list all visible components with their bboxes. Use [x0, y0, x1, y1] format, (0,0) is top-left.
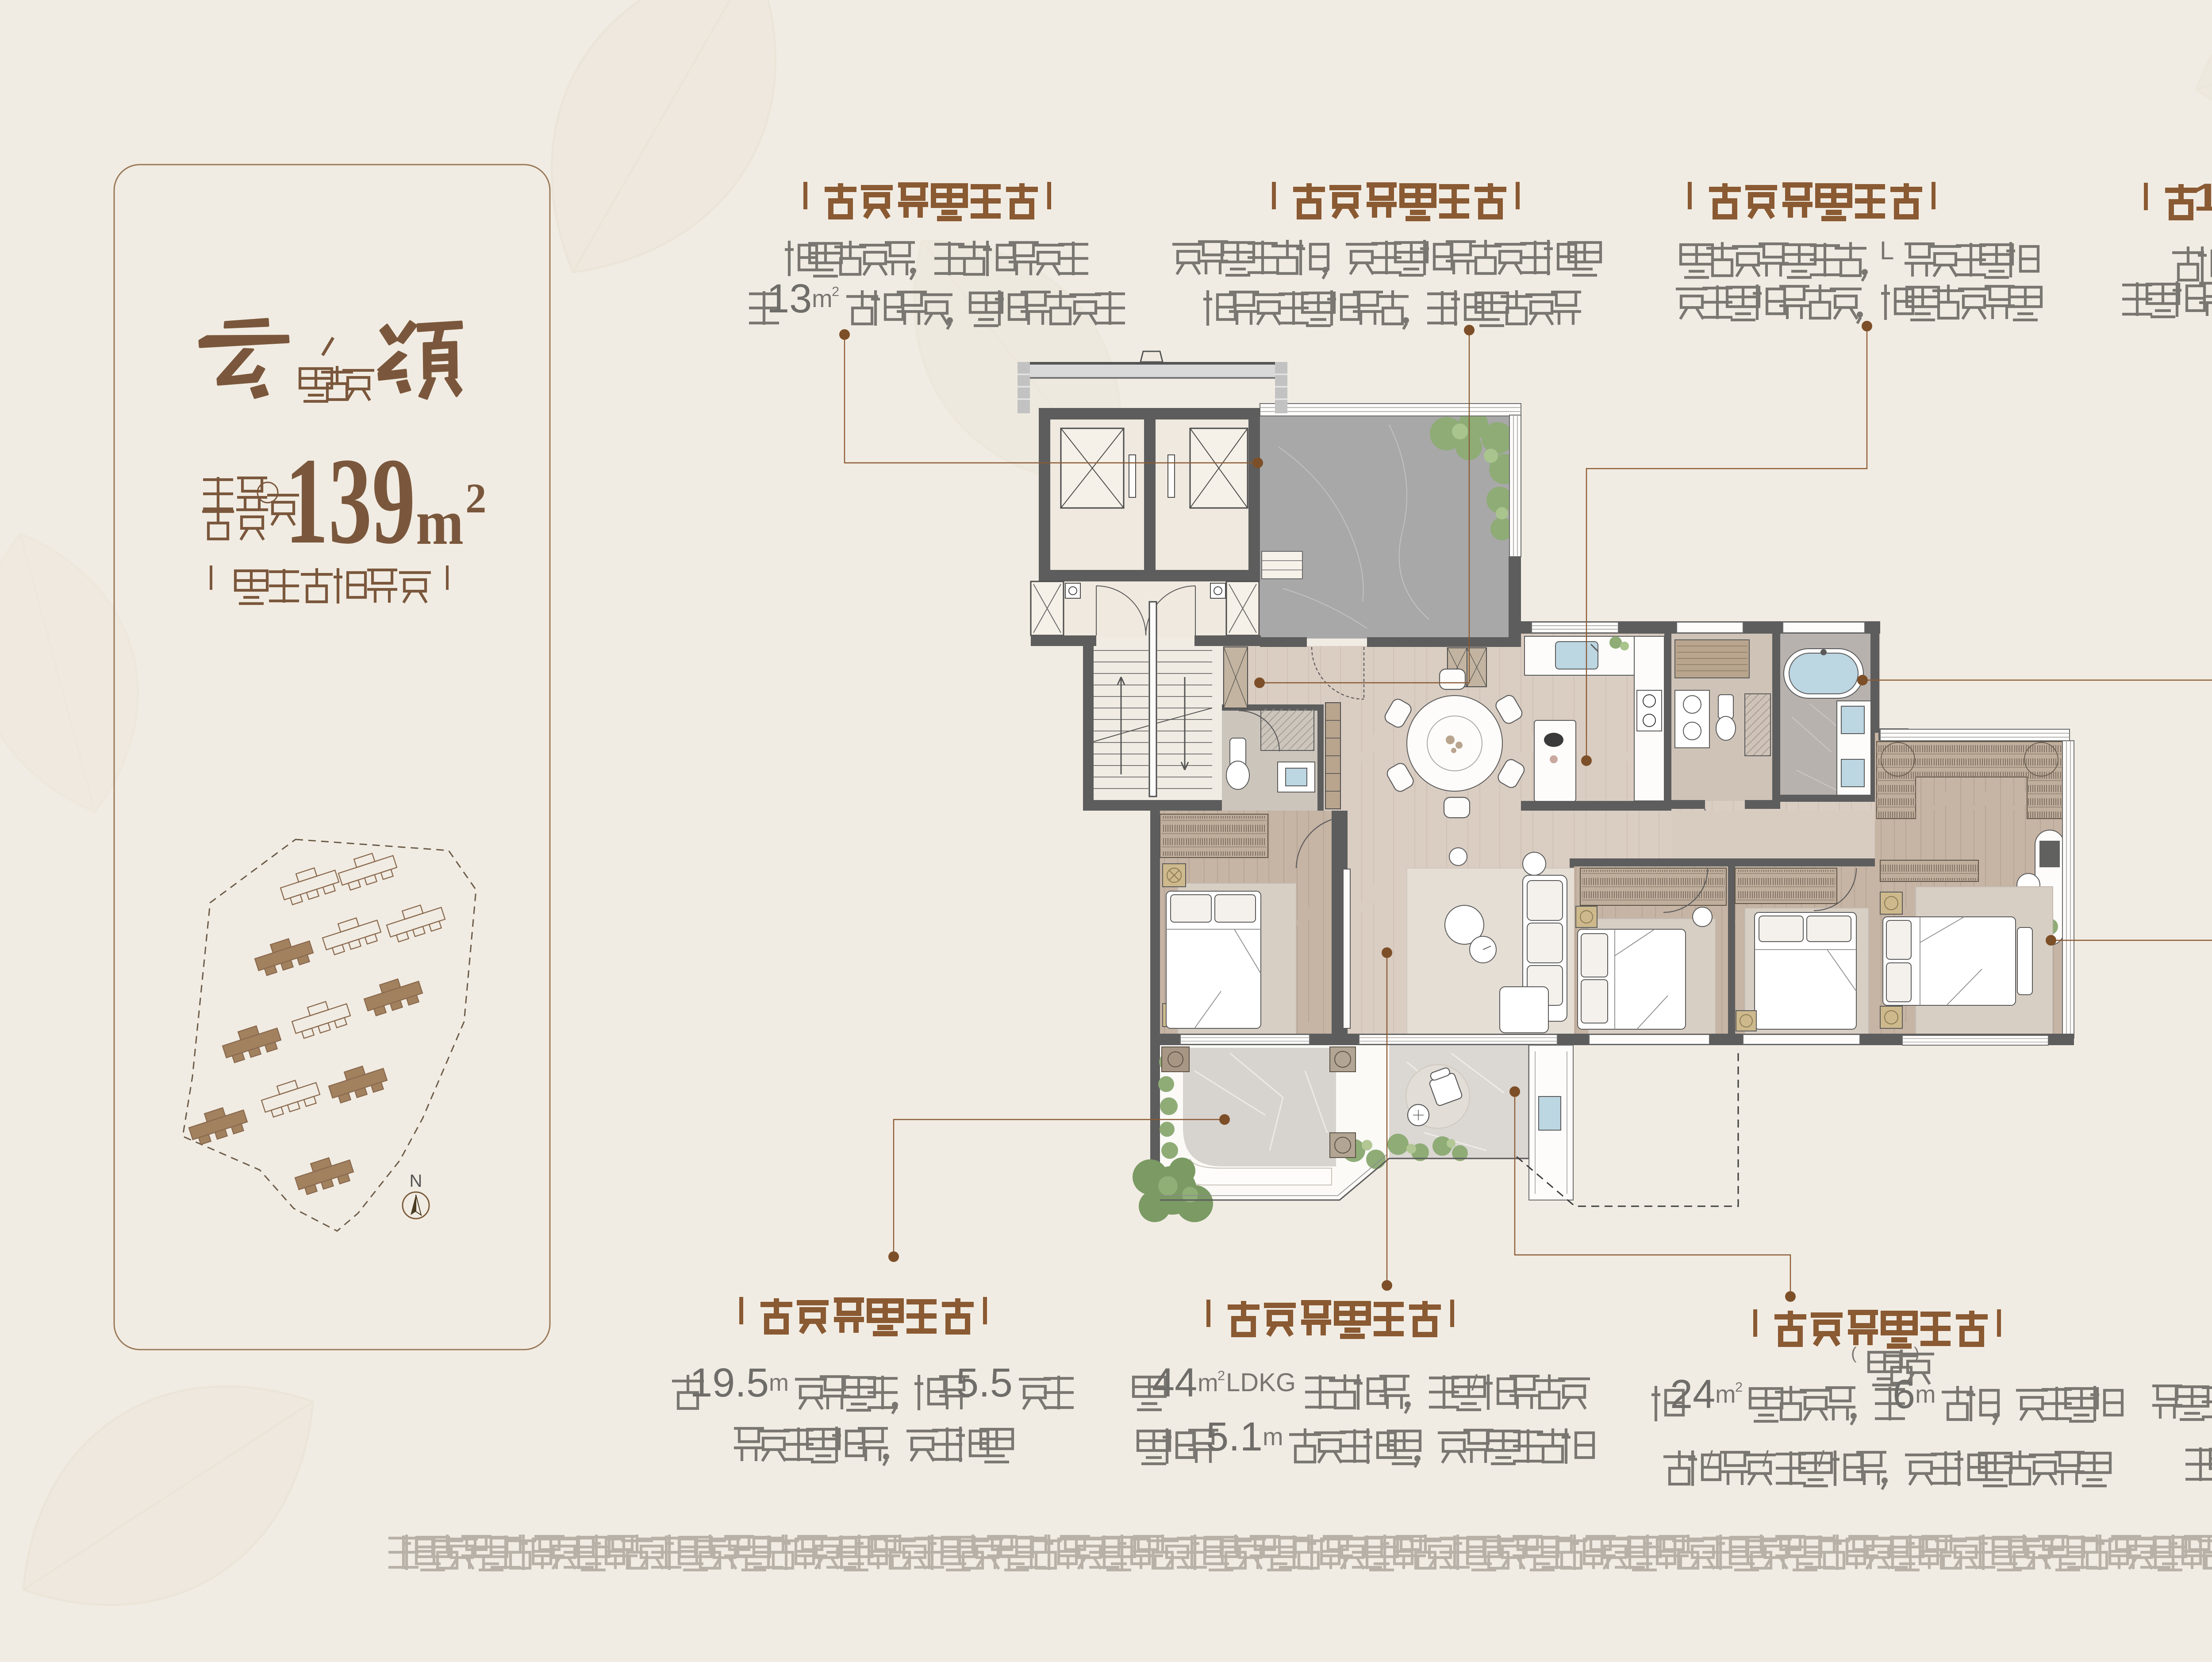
svg-text:m: m	[812, 285, 833, 312]
svg-text:44: 44	[1152, 1360, 1197, 1405]
svg-text:139: 139	[285, 432, 415, 569]
svg-text:19.5: 19.5	[690, 1360, 769, 1405]
svg-text:2: 2	[1735, 1379, 1743, 1395]
svg-text:LDKG: LDKG	[1226, 1368, 1296, 1397]
svg-text:L: L	[1880, 236, 1894, 265]
svg-text:): )	[1914, 1344, 1920, 1363]
svg-text:2: 2	[1217, 1368, 1225, 1383]
svg-text:m: m	[1263, 1423, 1283, 1450]
svg-text:m: m	[1198, 1369, 1218, 1397]
svg-text:/: /	[1707, 1447, 1713, 1471]
svg-text:/: /	[1818, 1447, 1824, 1471]
svg-text:2: 2	[465, 475, 487, 522]
svg-text:130%: 130%	[2193, 175, 2212, 219]
svg-text:6: 6	[1893, 1372, 1915, 1417]
svg-text:/: /	[1471, 1370, 1478, 1395]
svg-text:13: 13	[767, 276, 812, 321]
svg-text:m: m	[1915, 1380, 1936, 1408]
svg-text:2: 2	[832, 284, 839, 299]
svg-text:m: m	[1715, 1380, 1736, 1408]
svg-text:/: /	[1763, 1447, 1769, 1471]
svg-text:24: 24	[1670, 1372, 1715, 1417]
svg-text:5.1: 5.1	[1206, 1414, 1263, 1459]
svg-text:m: m	[416, 487, 464, 558]
svg-text:(: (	[1851, 1344, 1857, 1363]
svg-text:m: m	[769, 1370, 789, 1396]
svg-text:N: N	[410, 1171, 422, 1191]
svg-text:5.5: 5.5	[956, 1360, 1013, 1405]
